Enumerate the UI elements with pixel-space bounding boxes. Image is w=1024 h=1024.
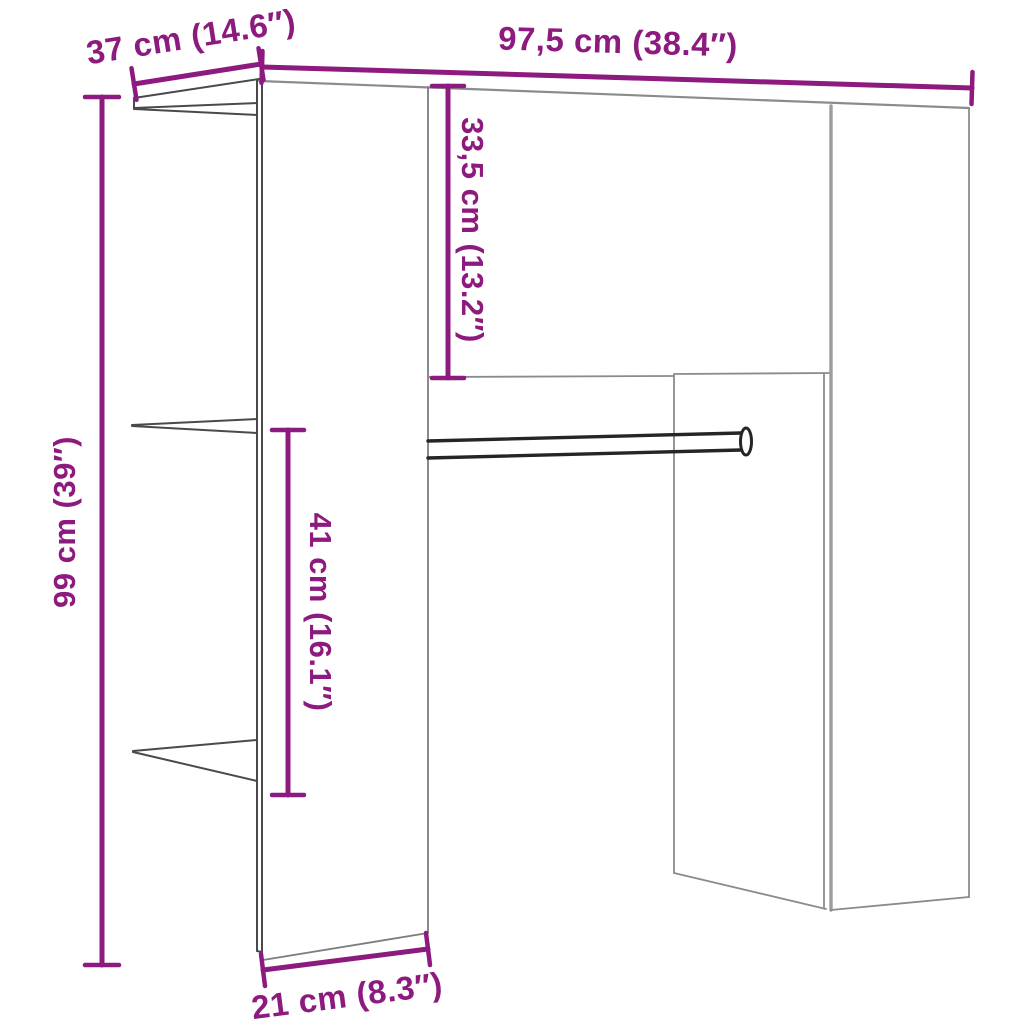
dimension-diagram: 37 cm (14.6″) 97,5 cm (38.4″) 33,5 cm (1… bbox=[0, 0, 1024, 1024]
left-side-panel bbox=[134, 79, 262, 952]
furniture-outline bbox=[132, 79, 969, 960]
shelf-top bbox=[134, 103, 257, 115]
top-cabinet bbox=[428, 373, 831, 377]
dimension-label-rail-drop: 41 cm (16.1″) bbox=[302, 513, 338, 712]
dimension-line-rail-drop bbox=[272, 430, 304, 795]
rail-end-cap bbox=[741, 428, 752, 455]
shelf-middle bbox=[132, 419, 257, 433]
dimension-line-total-height bbox=[85, 97, 119, 965]
shelf-bottom bbox=[133, 740, 257, 781]
furniture-line-drawing bbox=[0, 0, 1024, 1024]
dimension-label-total-height: 99 cm (39″) bbox=[47, 436, 83, 608]
dimension-lines bbox=[85, 48, 973, 986]
dimension-label-cabinet-height: 33,5 cm (13.2″) bbox=[454, 117, 490, 343]
hanging-rail bbox=[428, 428, 752, 458]
right-cabinet bbox=[674, 106, 969, 910]
dimension-label-width: 97,5 cm (38.4″) bbox=[498, 19, 739, 64]
